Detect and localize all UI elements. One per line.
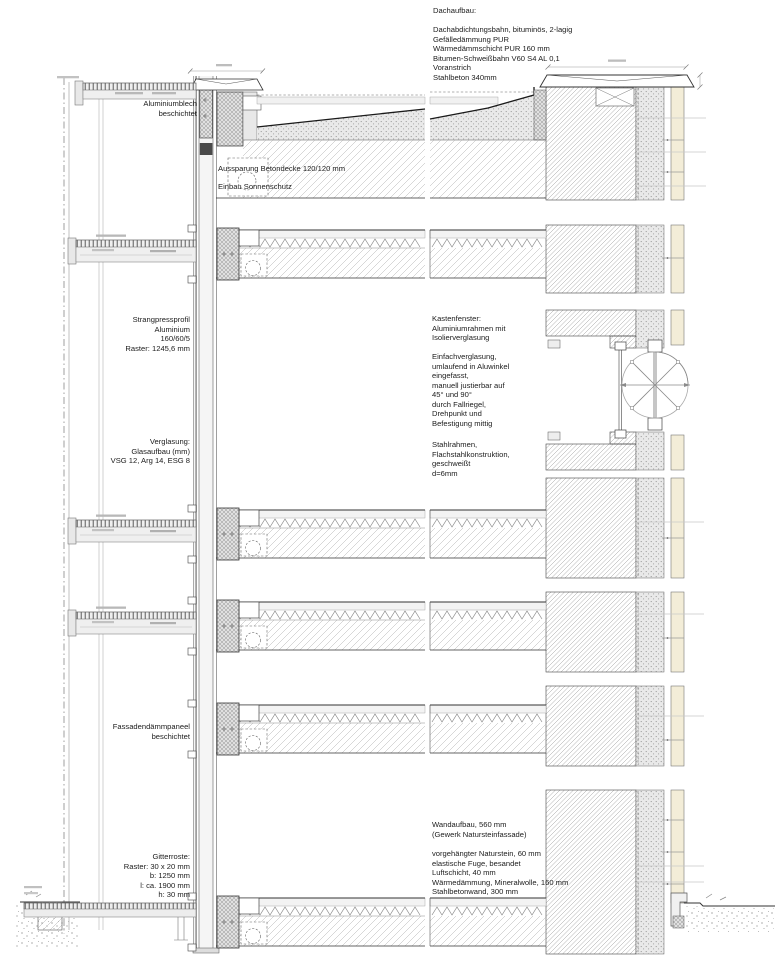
annotation-stahlrahmen: Stahlrahmen, Flachstahlkonstruktion, ges… xyxy=(432,440,597,478)
roof-parapet-detail-left xyxy=(188,64,425,198)
annotation-aluminiumblech: Aluminiumblech beschichtet xyxy=(97,99,197,118)
ground-detail-right xyxy=(671,893,775,932)
wall-segment xyxy=(546,225,684,293)
annotation-dachaufbau: Dachaufbau: Dachabdichtungsbahn, bitumin… xyxy=(433,6,703,83)
annotation-verglasung: Verglasung: Glasaufbau (mm) VSG 12, Arg … xyxy=(55,437,190,466)
annotation-kastenfenster: Kastenfenster: Aluminiumrahmen mit Isoli… xyxy=(432,314,597,343)
drawing-sheet: Dachaufbau: Dachabdichtungsbahn, bitumin… xyxy=(0,0,780,971)
annotation-wandaufbau-layers: vorgehängter Naturstein, 60 mm elastisch… xyxy=(432,849,662,897)
annotation-aussparung: Aussparung Betondecke 120/120 mm xyxy=(218,164,438,174)
annotation-fassadendaemmpaneel: Fassadendämmpaneel beschichtet xyxy=(75,722,190,741)
pivot-window-symbol xyxy=(620,352,690,418)
wall-segment xyxy=(546,478,684,578)
annotation-einfachverglasung: Einfachverglasung, umlaufend in Aluwinke… xyxy=(432,352,597,429)
grid-axis-and-hanger-rods xyxy=(64,78,103,934)
wall-segment xyxy=(546,592,684,672)
annotation-wandaufbau: Wandaufbau, 560 mm (Gewerk Natursteinfas… xyxy=(432,820,642,839)
annotation-strangpressprofil: Strangpressprofil Aluminium 160/60/5 Ras… xyxy=(80,315,190,353)
annotation-einbau-sonnenschutz: Einbau Sonnenschutz xyxy=(218,182,398,192)
technical-drawing-canvas xyxy=(0,0,780,971)
annotation-gitterroste: Gitterroste: Raster: 30 x 20 mm b: 1250 … xyxy=(75,852,190,900)
left-facade-section xyxy=(16,64,425,953)
mullion-profile xyxy=(193,76,219,953)
wall-segment xyxy=(546,686,684,766)
